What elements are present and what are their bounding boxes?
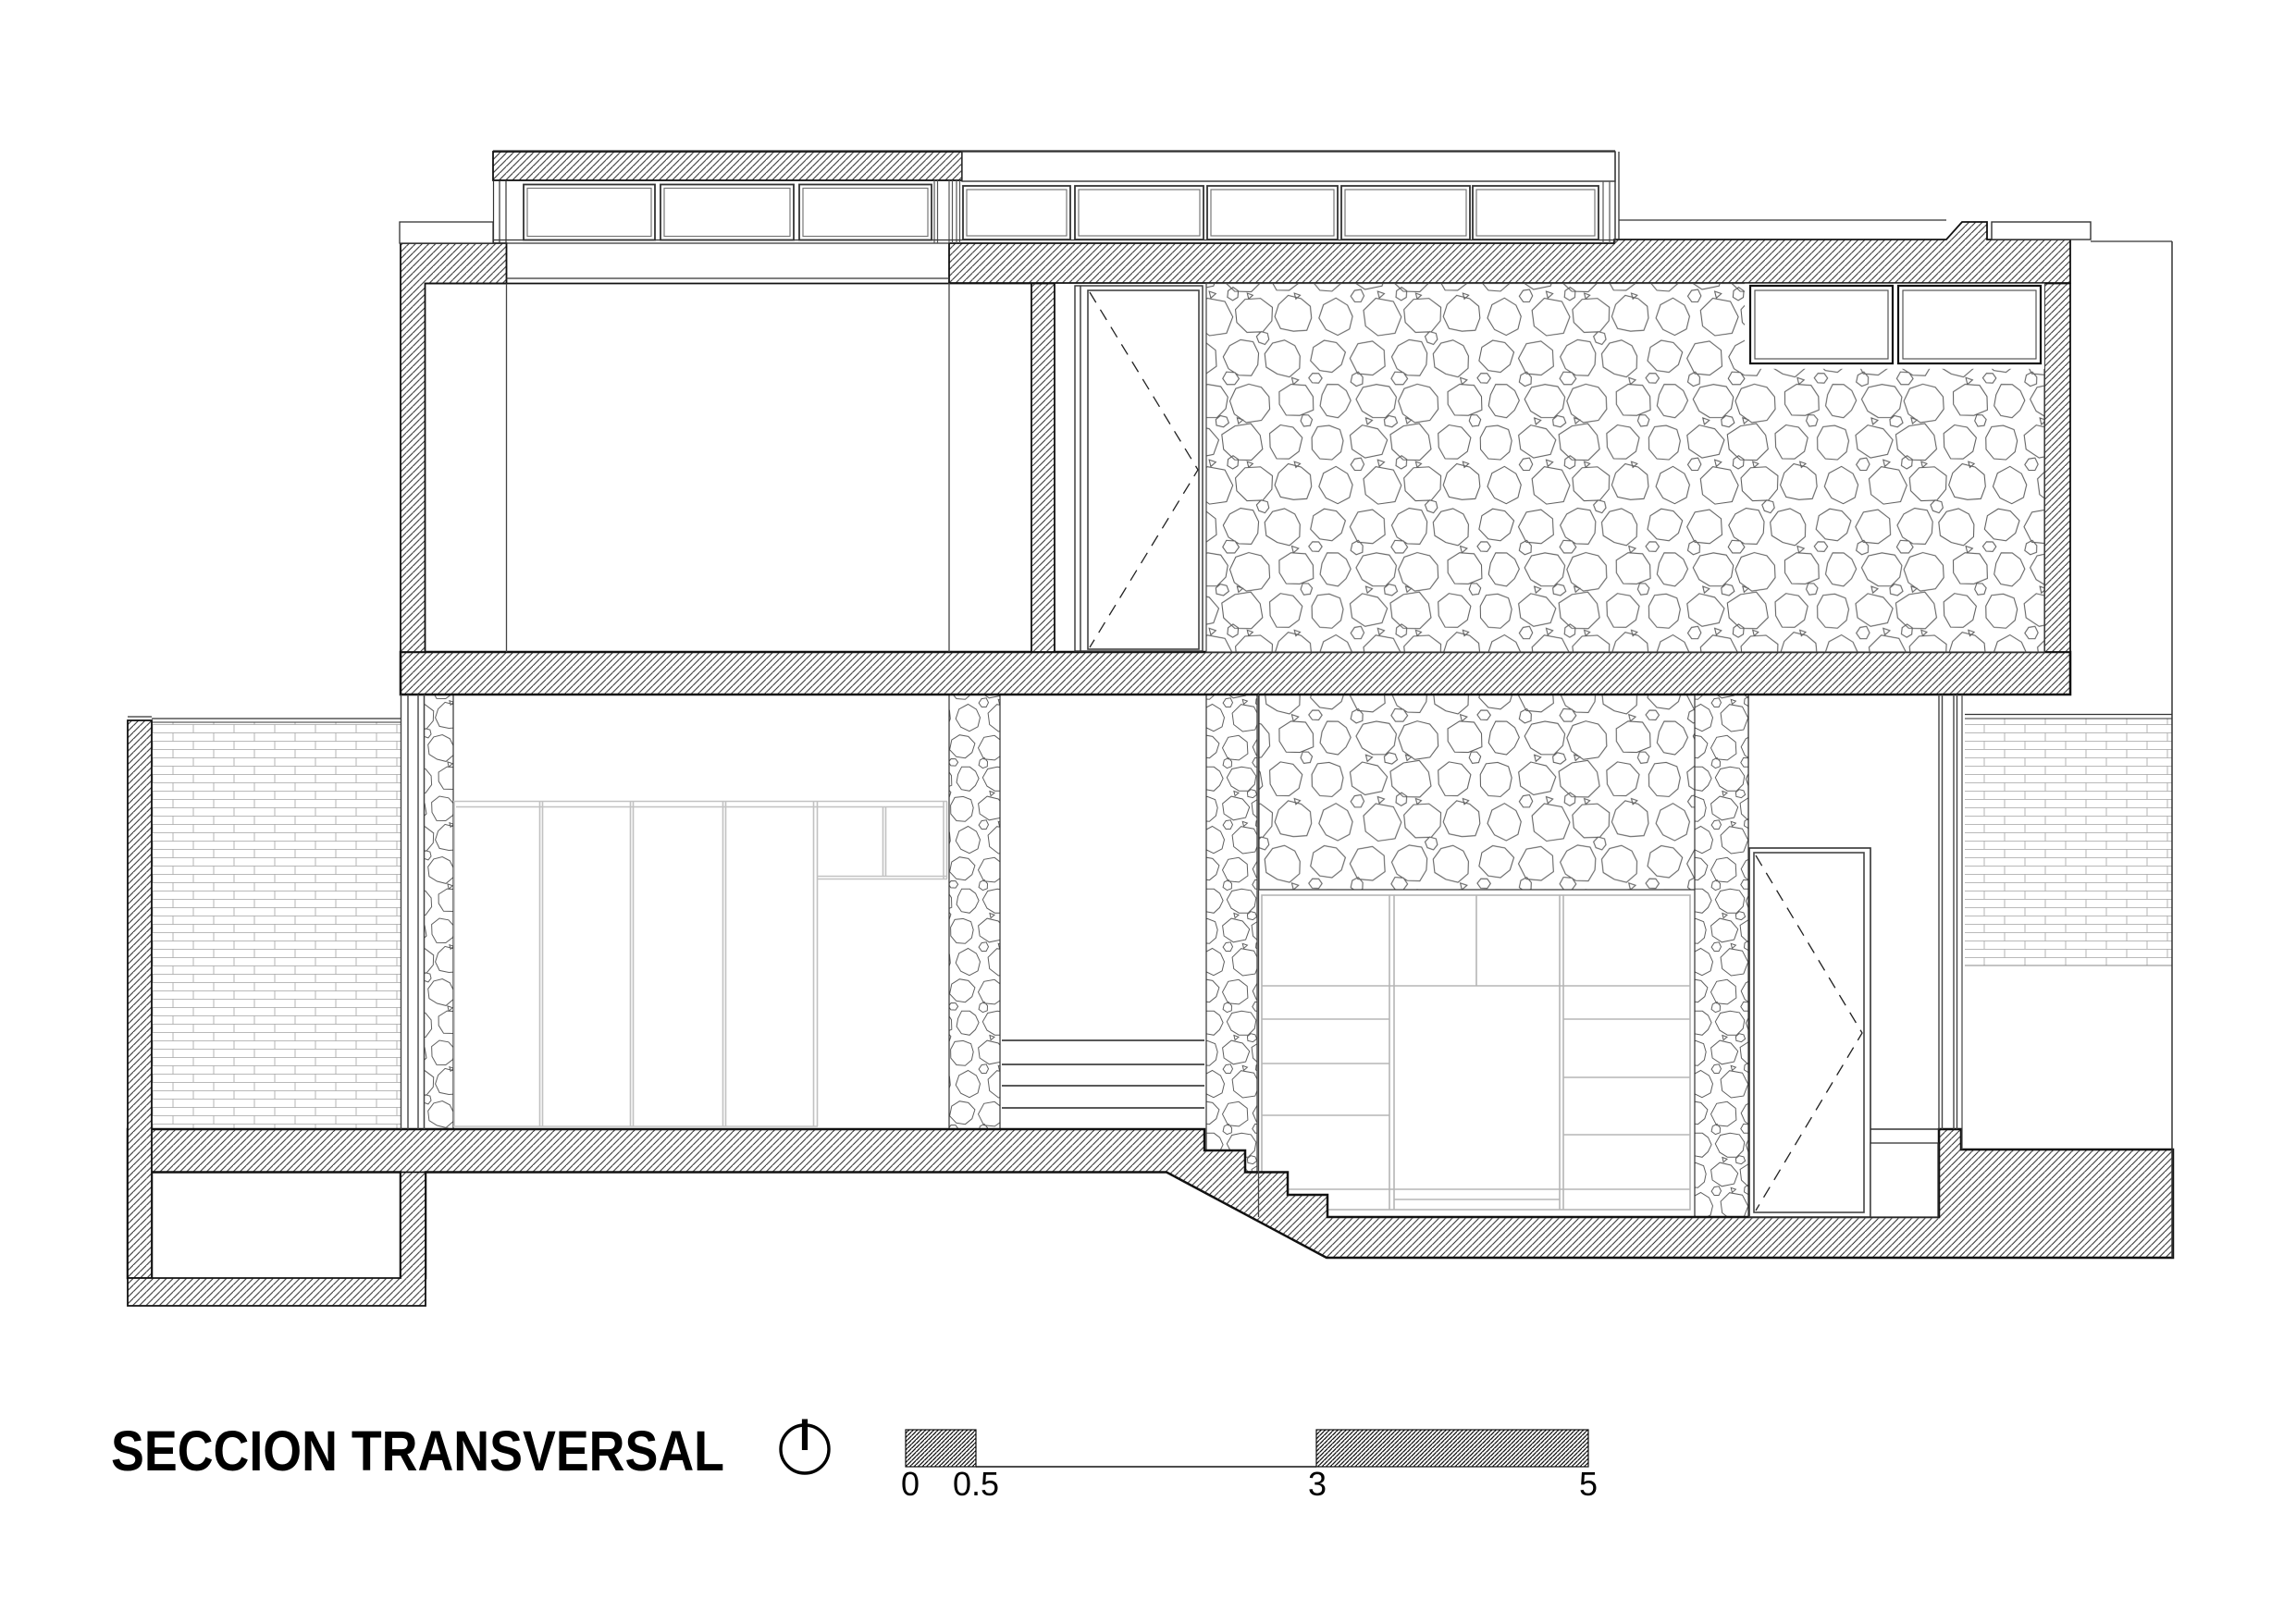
svg-text:SECCION TRANSVERSAL: SECCION TRANSVERSAL — [111, 1420, 724, 1482]
svg-text:0: 0 — [901, 1465, 920, 1503]
svg-text:5: 5 — [1579, 1465, 1598, 1503]
svg-text:3: 3 — [1308, 1465, 1327, 1503]
svg-text:0.5: 0.5 — [953, 1465, 999, 1503]
